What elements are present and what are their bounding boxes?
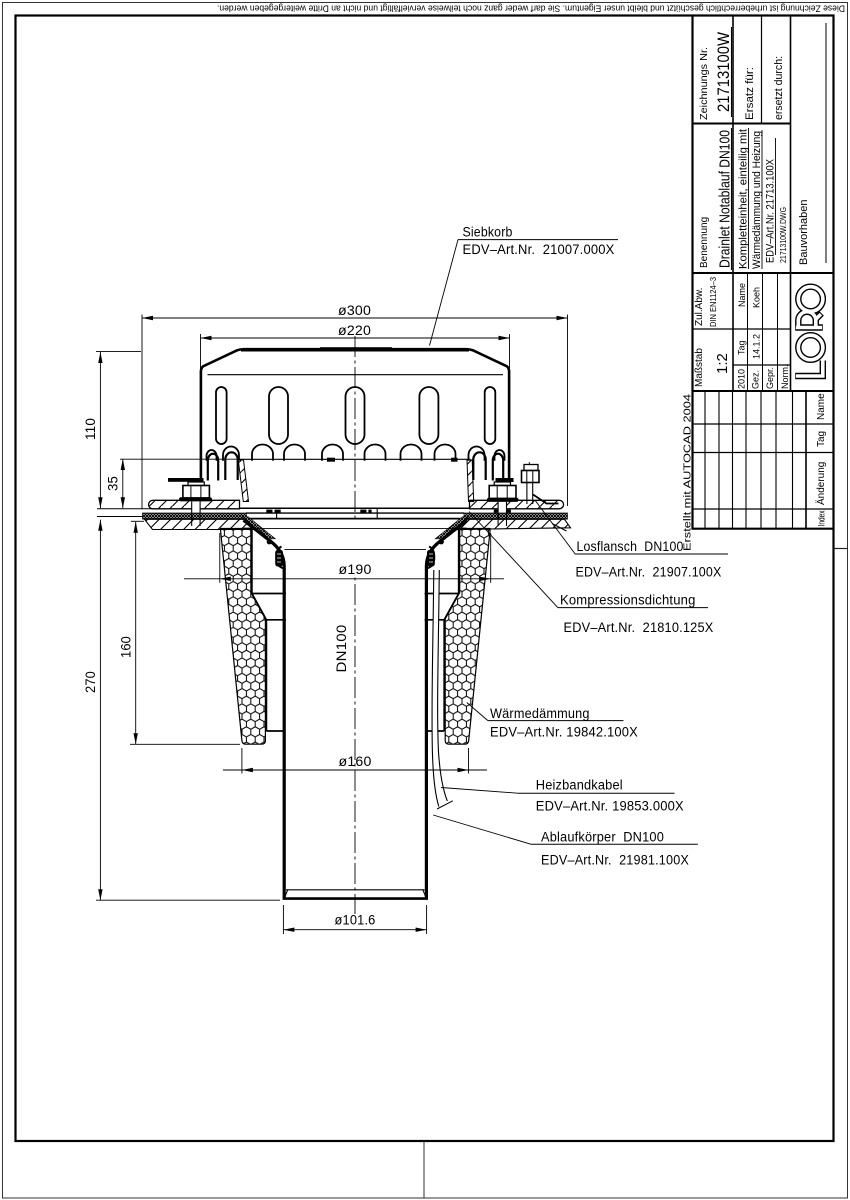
svg-text:DN100: DN100 — [334, 625, 350, 673]
svg-text:Erstellt mit AUTOCAD 2004: Erstellt mit AUTOCAD 2004 — [682, 394, 694, 551]
svg-text:Maßstab: Maßstab — [694, 348, 705, 387]
svg-text:2010: 2010 — [737, 369, 747, 389]
svg-text:Diese Zeichnung ist urheberrec: Diese Zeichnung ist urheberrechtlich ges… — [217, 4, 845, 14]
svg-text:Benennung: Benennung — [699, 217, 710, 268]
svg-text:Norm.: Norm. — [780, 365, 790, 390]
svg-text:160: 160 — [119, 636, 135, 658]
svg-text:ø190: ø190 — [339, 562, 372, 578]
svg-text:EDV–Art.Nr. 21713.100X: EDV–Art.Nr. 21713.100X — [765, 158, 777, 263]
svg-text:21713100W: 21713100W — [715, 32, 733, 112]
svg-text:110: 110 — [83, 418, 99, 440]
svg-text:14.1.2: 14.1.2 — [752, 334, 762, 359]
svg-text:Gepr.: Gepr. — [765, 367, 775, 389]
svg-text:Siebkorb: Siebkorb — [463, 225, 513, 241]
svg-text:1:2: 1:2 — [714, 353, 731, 374]
svg-text:Index: Index — [817, 510, 827, 526]
svg-text:Losflansch DN100: Losflansch DN100 — [577, 539, 684, 555]
svg-text:EDV–Art.Nr. 21981.100X: EDV–Art.Nr. 21981.100X — [541, 853, 689, 869]
svg-text:Gez.: Gez. — [751, 370, 761, 389]
svg-text:Heizbandkabel: Heizbandkabel — [536, 778, 623, 794]
svg-text:Tag: Tag — [737, 340, 747, 355]
svg-text:21713100W.DWG: 21713100W.DWG — [778, 207, 788, 263]
svg-text:35: 35 — [106, 476, 122, 491]
svg-text:Wärmedämmung: Wärmedämmung — [490, 706, 590, 722]
svg-text:Ersatz für:: Ersatz für: — [744, 67, 756, 120]
svg-text:ø101.6: ø101.6 — [335, 913, 376, 929]
svg-text:Zul.Abw.: Zul.Abw. — [694, 288, 705, 326]
svg-text:EDV–Art.Nr. 19853.000X: EDV–Art.Nr. 19853.000X — [536, 799, 684, 815]
svg-text:270: 270 — [83, 671, 99, 693]
svg-text:ø220: ø220 — [338, 323, 371, 339]
svg-text:ø300: ø300 — [338, 303, 371, 319]
svg-text:DIN EN1124–3: DIN EN1124–3 — [708, 277, 718, 327]
svg-text:Änderung: Änderung — [815, 462, 827, 505]
svg-text:Kompletteinheit, einteilig mit: Kompletteinheit, einteilig mit — [738, 129, 750, 269]
svg-text:EDV–Art.Nr. 21907.100X: EDV–Art.Nr. 21907.100X — [576, 565, 722, 581]
svg-text:Tag: Tag — [816, 431, 827, 447]
svg-text:Wärmedämmung und Heizung: Wärmedämmung und Heizung — [751, 131, 763, 269]
svg-text:EDV–Art.Nr. 21810.125X: EDV–Art.Nr. 21810.125X — [564, 620, 714, 636]
svg-text:ø160: ø160 — [339, 754, 372, 770]
svg-text:Kompressionsdichtung: Kompressionsdichtung — [560, 592, 696, 608]
svg-text:Name: Name — [737, 283, 747, 307]
svg-text:EDV–Art.Nr. 21007.000X: EDV–Art.Nr. 21007.000X — [463, 242, 615, 258]
svg-text:Name: Name — [816, 393, 827, 420]
svg-text:Bauvorhaben: Bauvorhaben — [798, 200, 810, 265]
svg-text:Koeh: Koeh — [752, 287, 762, 308]
svg-text:EDV–Art.Nr. 19842.100X: EDV–Art.Nr. 19842.100X — [490, 725, 638, 741]
svg-text:Zeichnungs Nr.: Zeichnungs Nr. — [699, 47, 710, 120]
svg-text:Ablaufkörper DN100: Ablaufkörper DN100 — [541, 830, 664, 846]
svg-text:ersetzt durch:: ersetzt durch: — [773, 56, 785, 120]
